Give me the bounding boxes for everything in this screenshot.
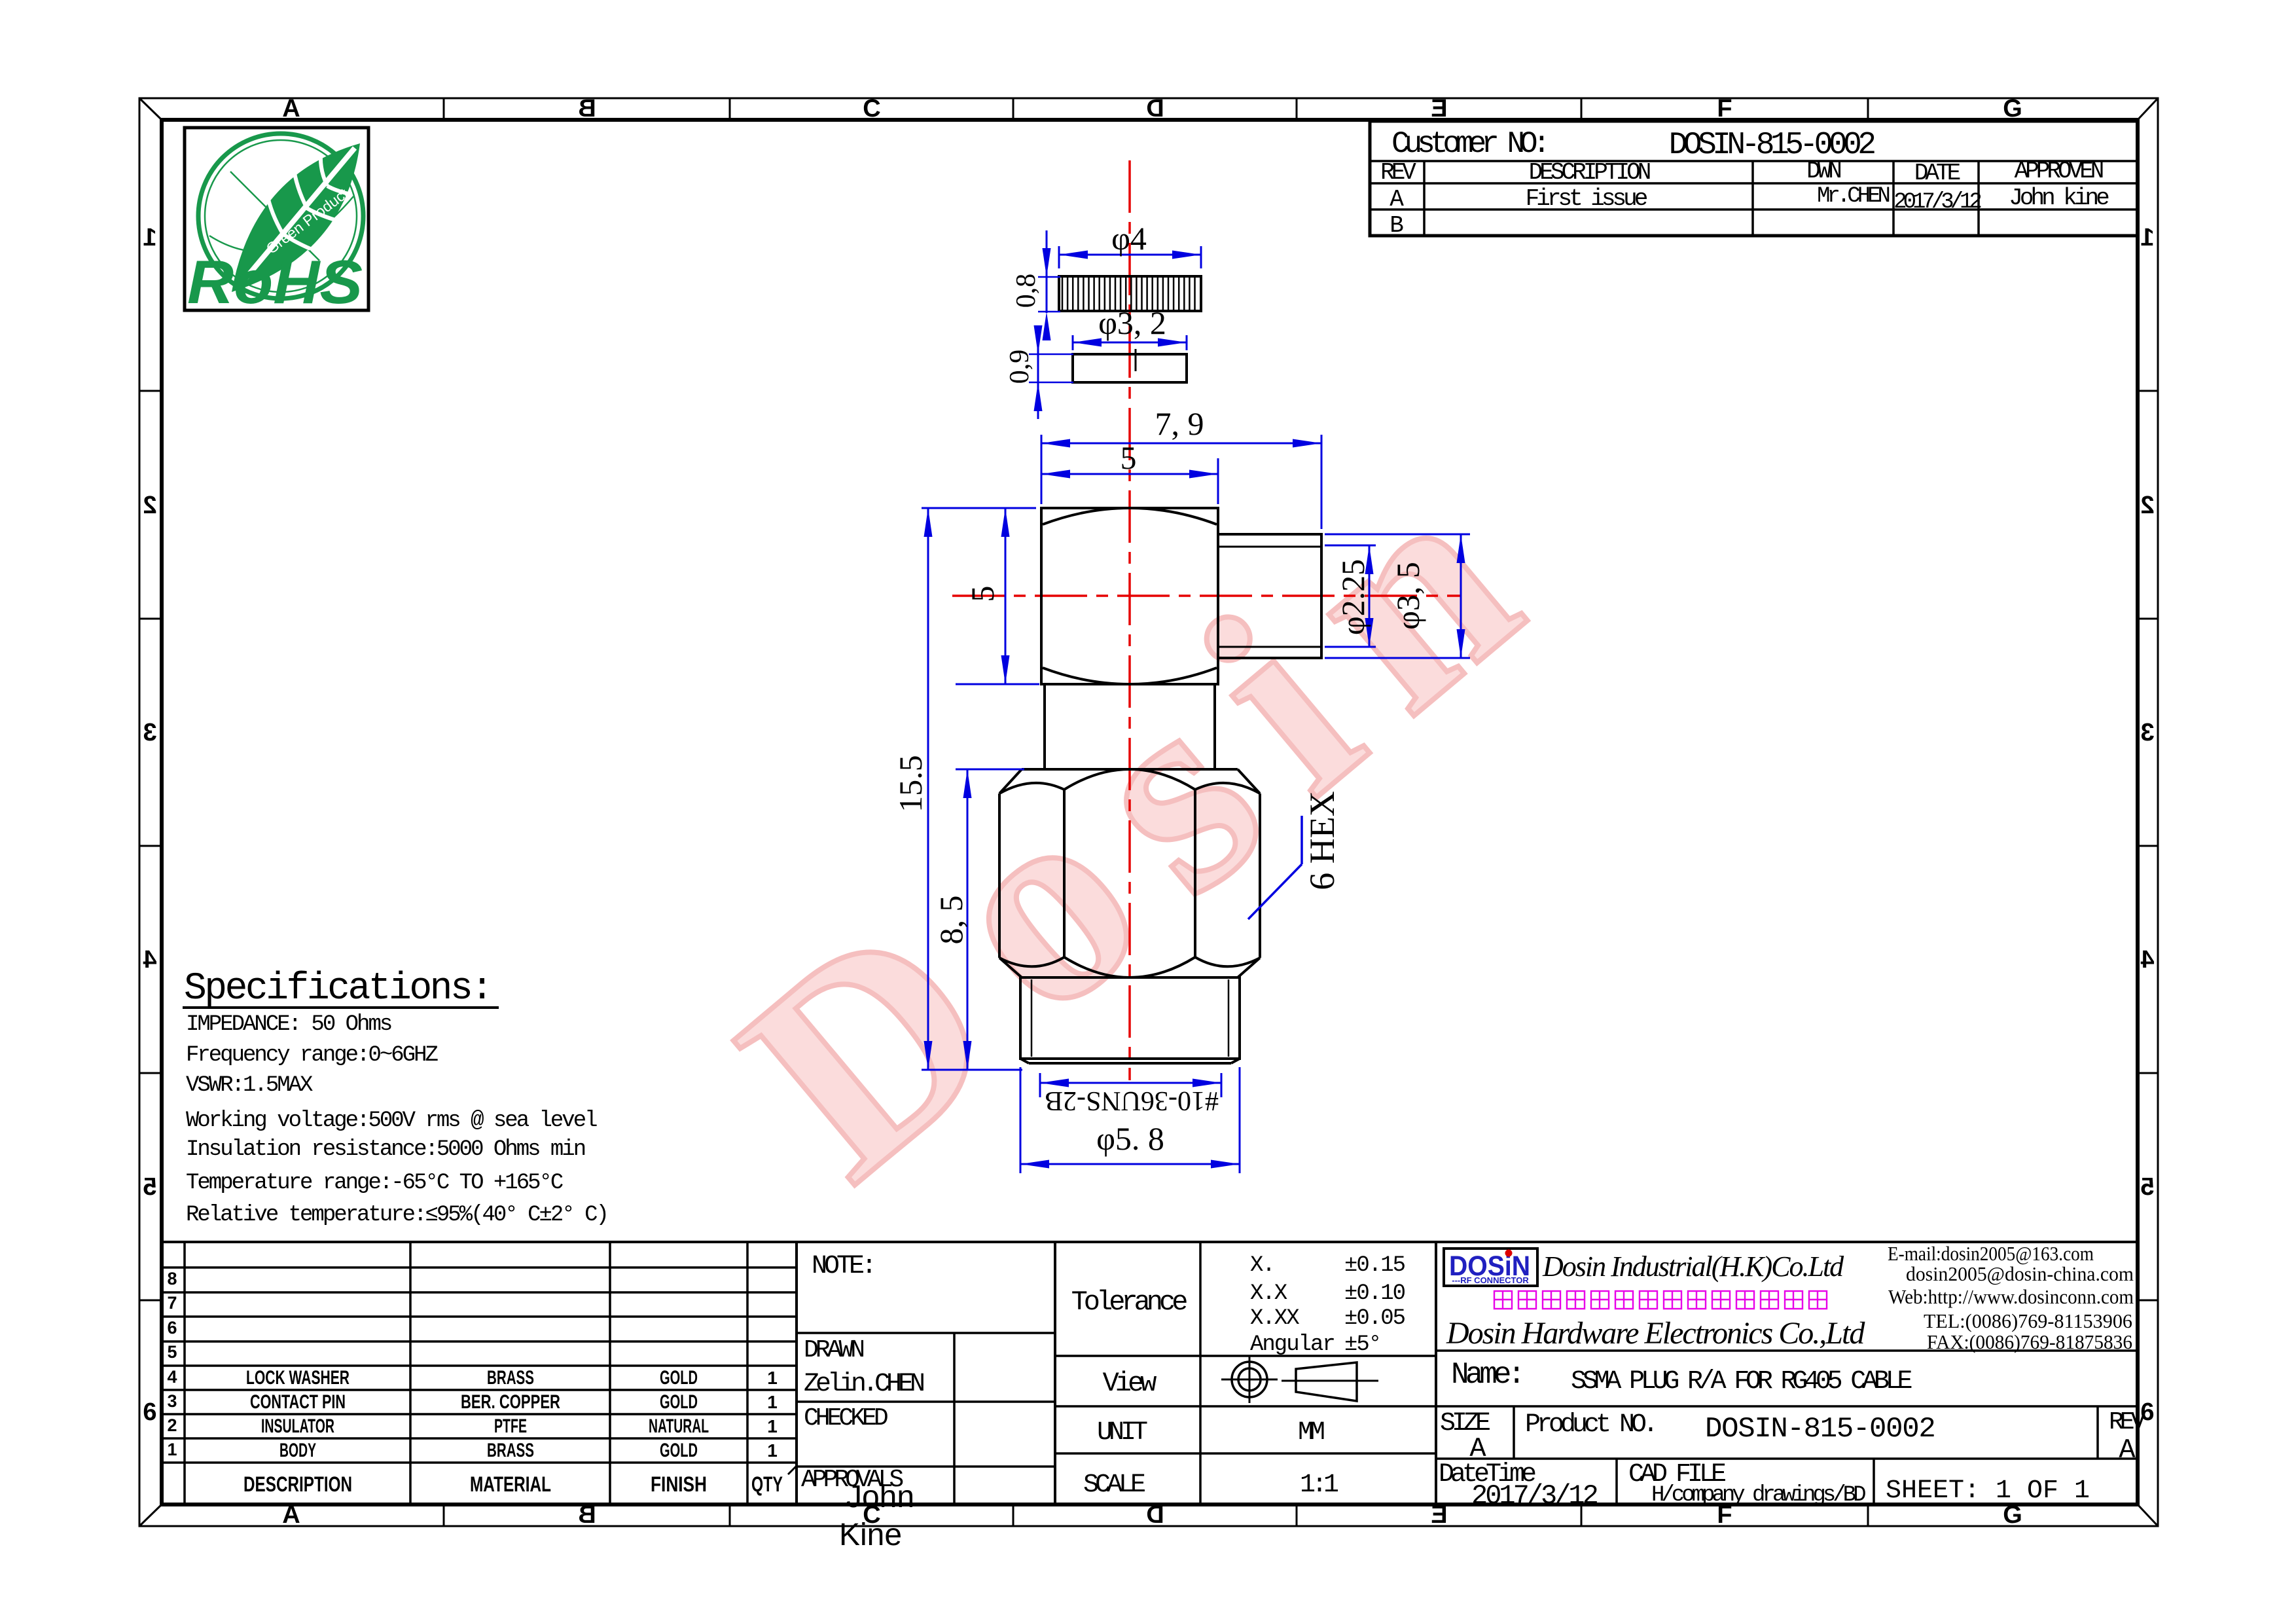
svg-text:7: 7 bbox=[167, 1293, 177, 1313]
svg-text:H/company drawings/BD: H/company drawings/BD bbox=[1651, 1483, 1865, 1508]
svg-text:2: 2 bbox=[2140, 492, 2154, 519]
svg-text:±0.05: ±0.05 bbox=[1344, 1306, 1405, 1331]
svg-text:4: 4 bbox=[167, 1367, 177, 1387]
svg-text:E: E bbox=[1431, 95, 1447, 122]
svg-text:4: 4 bbox=[143, 946, 156, 974]
svg-text:5: 5 bbox=[964, 586, 1001, 602]
svg-text:6 HEX: 6 HEX bbox=[1302, 791, 1342, 890]
svg-text:D: D bbox=[1146, 1501, 1164, 1529]
svg-text:Name:: Name: bbox=[1451, 1358, 1522, 1392]
svg-text:3: 3 bbox=[2140, 719, 2154, 746]
svg-text:#10-36UNS-2B: #10-36UNS-2B bbox=[1045, 1085, 1219, 1116]
svg-text:TEL:(0086)769-81153906: TEL:(0086)769-81153906 bbox=[1924, 1309, 2132, 1332]
svg-text:2: 2 bbox=[167, 1415, 177, 1435]
svg-text:5: 5 bbox=[2140, 1173, 2154, 1201]
svg-text:INSULATOR: INSULATOR bbox=[261, 1415, 334, 1437]
svg-text:X.X: X.X bbox=[1250, 1281, 1287, 1306]
svg-text:Customer NO:: Customer NO: bbox=[1391, 127, 1545, 161]
svg-text:2017/3/12: 2017/3/12 bbox=[1471, 1480, 1598, 1512]
svg-text:±0.15: ±0.15 bbox=[1344, 1253, 1405, 1278]
svg-text:BRASS: BRASS bbox=[487, 1367, 534, 1389]
svg-text:CHECKED: CHECKED bbox=[804, 1404, 888, 1432]
svg-text:φ4: φ4 bbox=[1111, 220, 1147, 257]
svg-text:A: A bbox=[282, 1501, 300, 1529]
svg-text:1: 1 bbox=[767, 1440, 778, 1461]
svg-text:1: 1 bbox=[143, 224, 156, 251]
svg-text:F: F bbox=[1717, 95, 1732, 122]
svg-text:VSWR:1.5MAX: VSWR:1.5MAX bbox=[186, 1073, 313, 1098]
svg-text:φ5. 8: φ5. 8 bbox=[1096, 1120, 1164, 1157]
svg-text:D: D bbox=[1146, 95, 1164, 122]
svg-text:8, 5: 8, 5 bbox=[933, 896, 969, 945]
svg-text:Temperature range:-65°C TO +16: Temperature range:-65°C TO +165°C bbox=[186, 1171, 563, 1195]
svg-text:2: 2 bbox=[143, 492, 156, 519]
svg-text:GOLD: GOLD bbox=[660, 1440, 698, 1461]
svg-text:±5°: ±5° bbox=[1344, 1332, 1380, 1357]
svg-text:SHEET: 1 OF 1: SHEET: 1 OF 1 bbox=[1886, 1476, 2090, 1506]
svg-text:GOLD: GOLD bbox=[660, 1367, 698, 1389]
svg-text:X.: X. bbox=[1250, 1253, 1274, 1278]
svg-text:NATURAL: NATURAL bbox=[649, 1415, 709, 1437]
svg-text:1: 1 bbox=[767, 1416, 778, 1436]
svg-text:John: John bbox=[846, 1480, 914, 1514]
svg-text:A: A bbox=[282, 95, 300, 122]
svg-text:MATERIAL: MATERIAL bbox=[470, 1472, 551, 1496]
svg-text:DATE: DATE bbox=[1914, 160, 1960, 187]
svg-text:Dosin Industrial(H.K)Co.Ltd: Dosin Industrial(H.K)Co.Ltd bbox=[1542, 1250, 1844, 1283]
svg-text:NOTE:: NOTE: bbox=[812, 1252, 874, 1281]
svg-text:---RF CONNECTOR: ---RF CONNECTOR bbox=[1452, 1275, 1529, 1285]
svg-text:Frequency range:0~6GHZ: Frequency range:0~6GHZ bbox=[186, 1043, 438, 1068]
svg-text:Kine: Kine bbox=[839, 1518, 902, 1552]
svg-text:GOLD: GOLD bbox=[660, 1391, 698, 1413]
svg-text:1: 1 bbox=[2140, 224, 2154, 251]
svg-text:View: View bbox=[1103, 1368, 1157, 1399]
svg-text:φ2.25: φ2.25 bbox=[1335, 559, 1371, 635]
svg-text:SSMA PLUG R/A FOR RG405 CABLE: SSMA PLUG R/A FOR RG405 CABLE bbox=[1571, 1367, 1912, 1396]
svg-text:B: B bbox=[578, 95, 596, 122]
svg-text:±0.10: ±0.10 bbox=[1344, 1281, 1405, 1306]
svg-text:CONTACT PIN: CONTACT PIN bbox=[250, 1391, 346, 1413]
svg-text:DESCRIPTION: DESCRIPTION bbox=[1529, 159, 1650, 186]
svg-text:BODY: BODY bbox=[279, 1440, 316, 1461]
svg-text:DWN: DWN bbox=[1806, 158, 1840, 185]
svg-text:A: A bbox=[1390, 186, 1404, 213]
svg-text:LOCK WASHER: LOCK WASHER bbox=[246, 1367, 350, 1389]
svg-text:SCALE: SCALE bbox=[1083, 1470, 1145, 1500]
svg-text:6: 6 bbox=[167, 1318, 177, 1338]
svg-text:1: 1 bbox=[767, 1392, 778, 1412]
svg-text:RoHS: RoHS bbox=[187, 247, 363, 316]
svg-text:dosin2005@dosin-china.com: dosin2005@dosin-china.com bbox=[1906, 1262, 2134, 1285]
svg-text:2017/3/12: 2017/3/12 bbox=[1893, 190, 1981, 215]
svg-text:REV: REV bbox=[1380, 159, 1416, 186]
svg-text:B: B bbox=[578, 1501, 596, 1529]
svg-text:BRASS: BRASS bbox=[487, 1440, 534, 1461]
svg-text:1: 1 bbox=[167, 1440, 177, 1459]
svg-text:7, 9: 7, 9 bbox=[1155, 405, 1204, 442]
svg-text:φ3, 2: φ3, 2 bbox=[1098, 304, 1166, 341]
svg-text:15.5: 15.5 bbox=[892, 755, 929, 812]
svg-text:5: 5 bbox=[1121, 439, 1137, 476]
svg-text:C: C bbox=[863, 95, 880, 122]
svg-text:DRAWN: DRAWN bbox=[804, 1336, 863, 1364]
svg-text:BER. COPPER: BER. COPPER bbox=[461, 1391, 560, 1413]
svg-text:Insulation resistance:5000 Ohm: Insulation resistance:5000 Ohms min bbox=[186, 1137, 585, 1162]
svg-text:6: 6 bbox=[143, 1398, 156, 1426]
svg-text:3: 3 bbox=[167, 1391, 177, 1411]
svg-text:5: 5 bbox=[143, 1173, 156, 1201]
svg-text:Zelin.CHEN: Zelin.CHEN bbox=[804, 1370, 924, 1399]
svg-text:Specifications:: Specifications: bbox=[184, 968, 492, 1010]
svg-text:E-mail:dosin2005@163.com: E-mail:dosin2005@163.com bbox=[1888, 1242, 2094, 1265]
svg-text:G: G bbox=[2003, 95, 2022, 122]
svg-text:1: 1 bbox=[767, 1368, 778, 1388]
svg-text:QTY: QTY bbox=[751, 1472, 783, 1496]
svg-text:Dosin Hardware Electronics Co.: Dosin Hardware Electronics Co.,Ltd bbox=[1446, 1316, 1865, 1351]
svg-text:Tolerance: Tolerance bbox=[1071, 1286, 1187, 1318]
svg-text:φ3, 5: φ3, 5 bbox=[1390, 562, 1426, 630]
svg-text:3: 3 bbox=[143, 719, 156, 746]
svg-text:0,8: 0,8 bbox=[1011, 274, 1041, 308]
svg-text:X.XX: X.XX bbox=[1250, 1306, 1299, 1331]
svg-text:6: 6 bbox=[2140, 1398, 2154, 1426]
svg-text:Working voltage:500V rms @ sea: Working voltage:500V rms @ sea level bbox=[186, 1108, 597, 1133]
svg-text:FINISH: FINISH bbox=[651, 1472, 707, 1496]
svg-text:B: B bbox=[1390, 212, 1404, 239]
svg-text:Angular: Angular bbox=[1250, 1332, 1335, 1357]
svg-text:Web:http://www.dosinconn.com: Web:http://www.dosinconn.com bbox=[1888, 1285, 2134, 1308]
svg-text:DESCRIPTION: DESCRIPTION bbox=[243, 1472, 352, 1496]
svg-text:A: A bbox=[2119, 1434, 2136, 1466]
svg-text:IMPEDANCE: 50 Ohms: IMPEDANCE: 50 Ohms bbox=[186, 1012, 391, 1037]
svg-text:DOSIN-815-0002: DOSIN-815-0002 bbox=[1705, 1413, 1935, 1446]
svg-text:FAX:(0086)769-81875836: FAX:(0086)769-81875836 bbox=[1927, 1330, 2132, 1353]
svg-text:8: 8 bbox=[167, 1269, 177, 1288]
svg-text:0,9: 0,9 bbox=[1005, 350, 1035, 384]
svg-text:John kine: John kine bbox=[2009, 185, 2109, 211]
svg-text:MM: MM bbox=[1298, 1418, 1324, 1448]
svg-text:4: 4 bbox=[2140, 946, 2154, 974]
svg-text:Mr.CHEN: Mr.CHEN bbox=[1817, 184, 1889, 209]
svg-text:DOSIN-815-0002: DOSIN-815-0002 bbox=[1669, 128, 1875, 163]
svg-text:Relative temperature:≤95%(40°: Relative temperature:≤95%(40° C±2° C) bbox=[186, 1203, 607, 1228]
svg-text:First issue: First issue bbox=[1526, 185, 1647, 212]
svg-text:REV: REV bbox=[2109, 1408, 2146, 1436]
svg-text:APPROVEN: APPROVEN bbox=[2015, 158, 2103, 185]
svg-text:E: E bbox=[1431, 1501, 1447, 1529]
svg-text:PTFE: PTFE bbox=[494, 1415, 527, 1437]
svg-text:UNIT: UNIT bbox=[1097, 1418, 1147, 1448]
svg-text:5: 5 bbox=[167, 1342, 177, 1362]
svg-text:Product NO.: Product NO. bbox=[1525, 1410, 1655, 1440]
svg-text:1:1: 1:1 bbox=[1300, 1470, 1338, 1500]
